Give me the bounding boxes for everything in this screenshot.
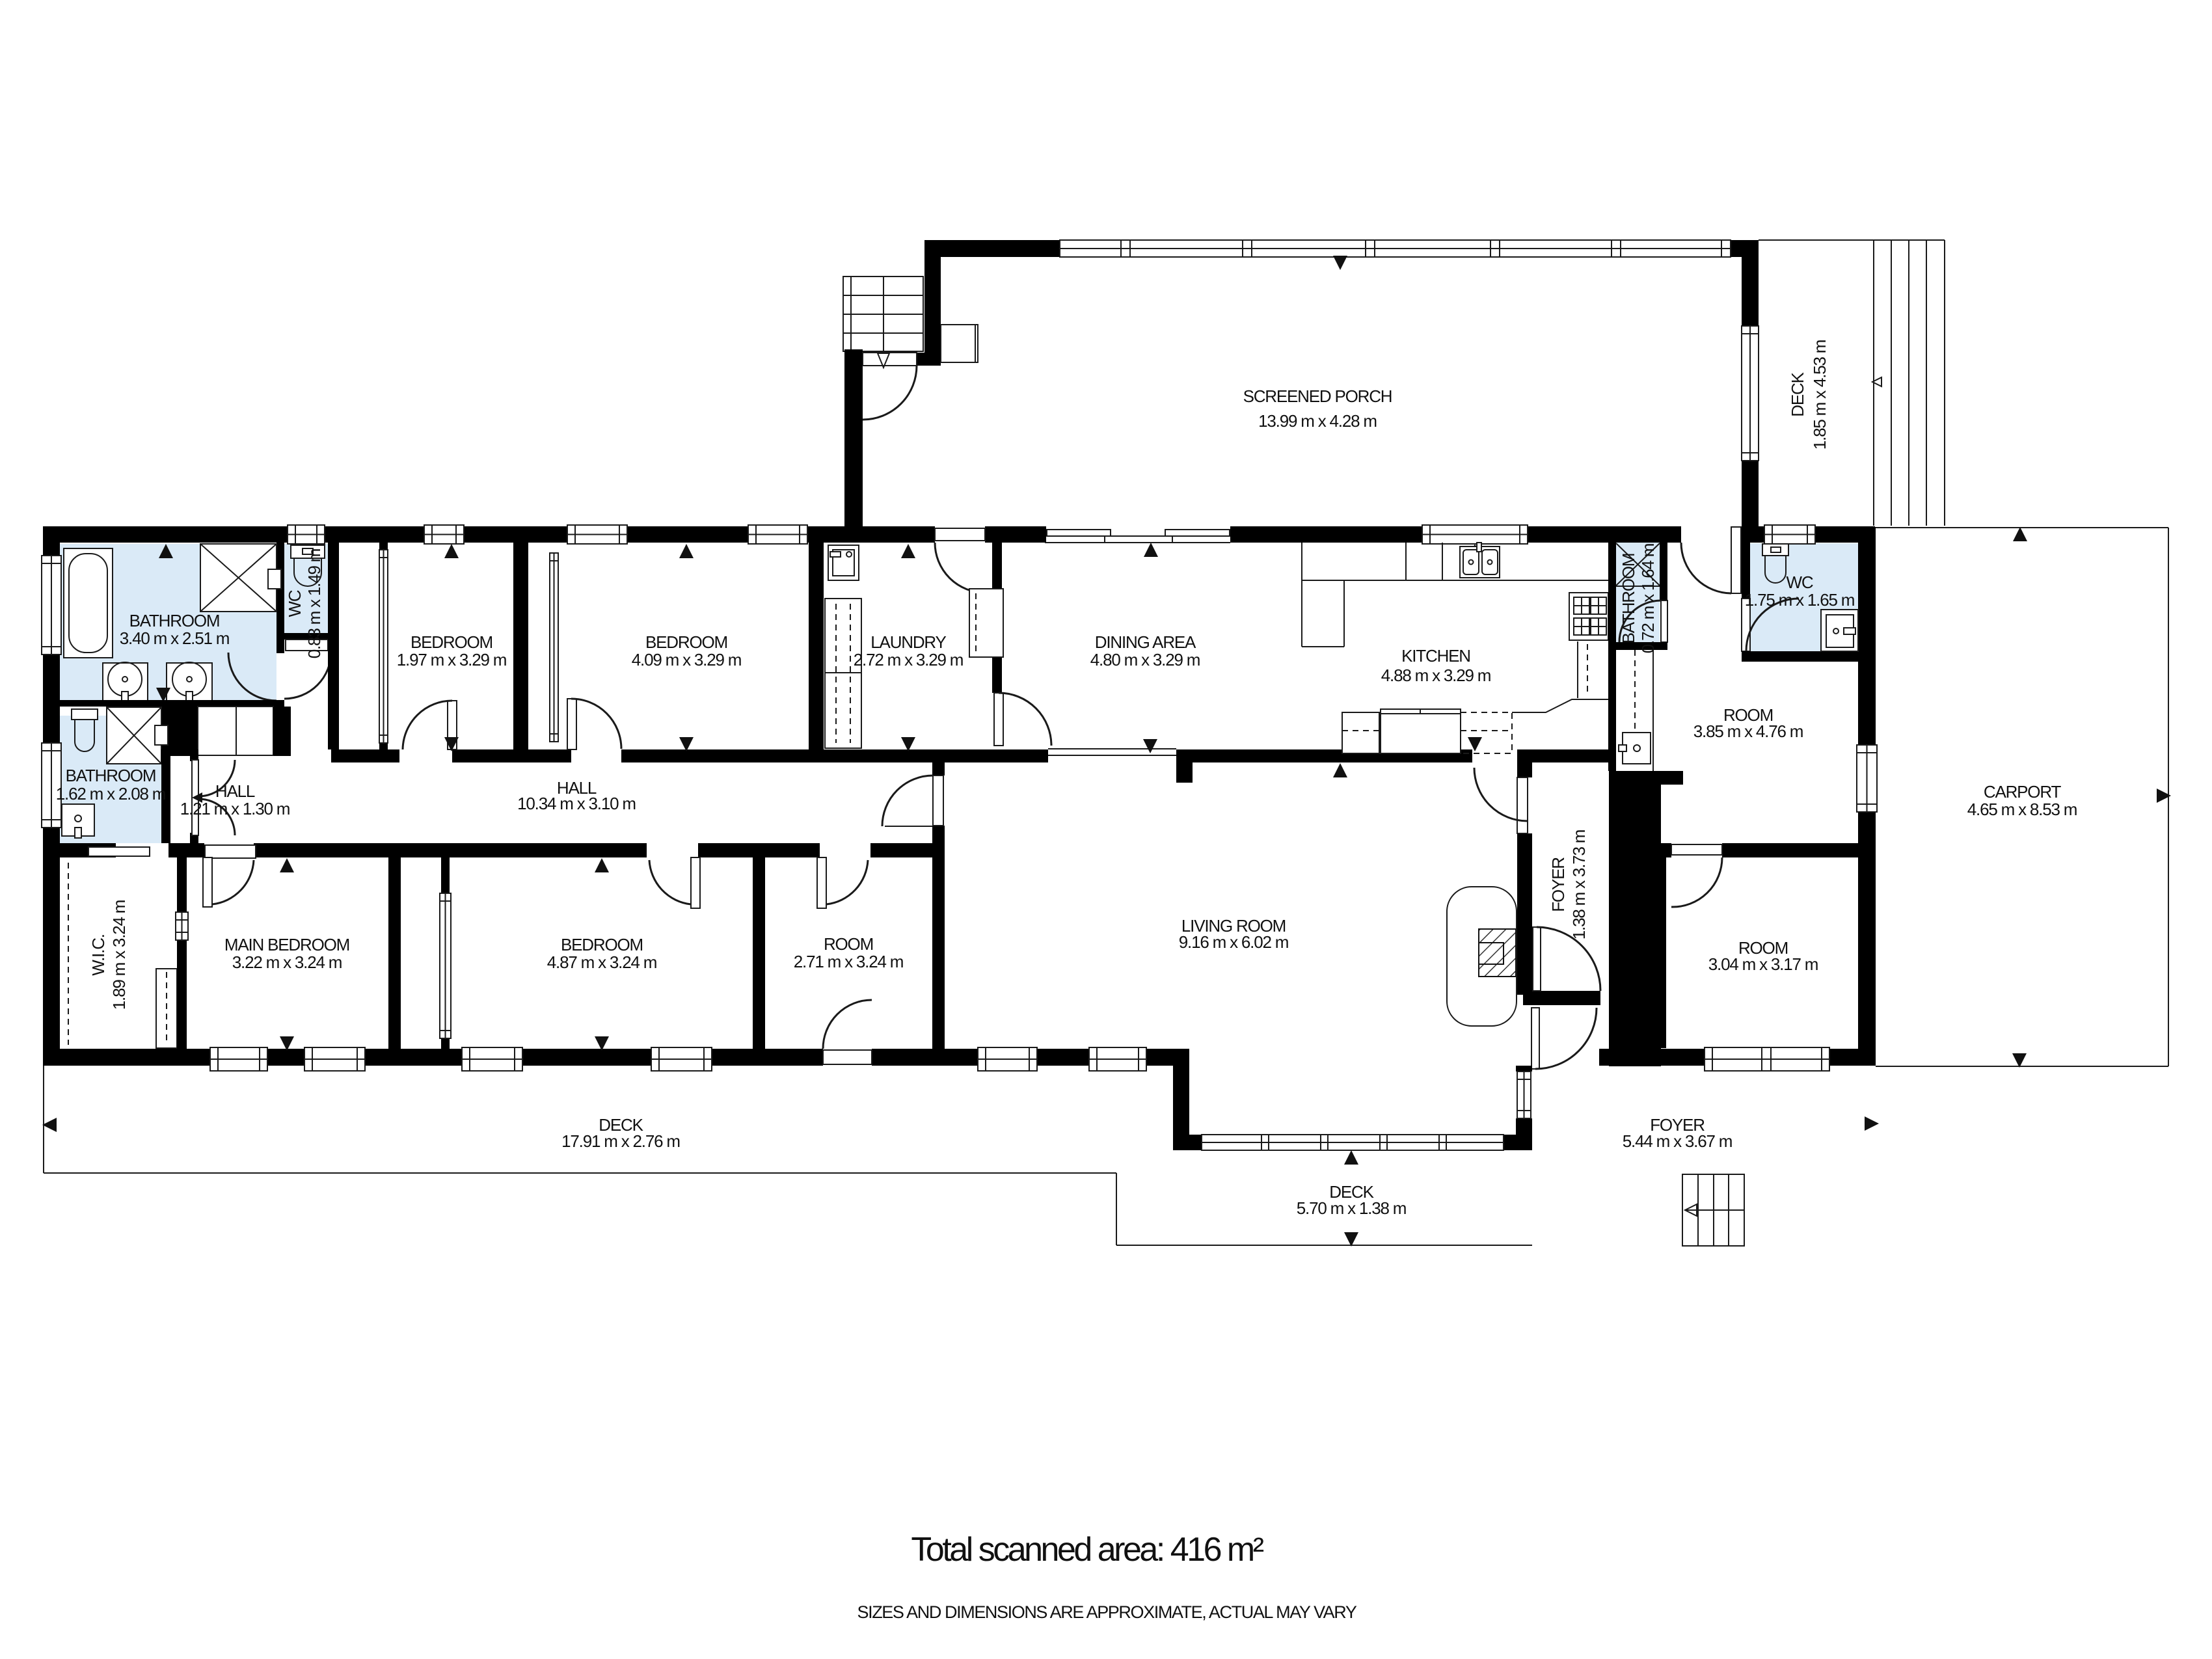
svg-text:5.70 m x 1.38 m: 5.70 m x 1.38 m — [1297, 1198, 1406, 1218]
svg-text:1.38 m x 3.73 m: 1.38 m x 3.73 m — [1569, 830, 1589, 939]
svg-text:1.85 m x 4.53 m: 1.85 m x 4.53 m — [1810, 340, 1829, 450]
svg-text:DINING AREA: DINING AREA — [1095, 632, 1196, 652]
svg-text:2.72 m x 3.29 m: 2.72 m x 3.29 m — [854, 650, 963, 669]
svg-text:SIZES AND DIMENSIONS ARE APPRO: SIZES AND DIMENSIONS ARE APPROXIMATE, AC… — [857, 1602, 1356, 1622]
svg-text:3.04 m x 3.17 m: 3.04 m x 3.17 m — [1708, 954, 1818, 974]
svg-text:WC: WC — [1787, 573, 1813, 592]
svg-text:HALL: HALL — [215, 781, 255, 801]
svg-text:BATHROOM: BATHROOM — [129, 611, 220, 630]
svg-text:13.99 m x 4.28 m: 13.99 m x 4.28 m — [1258, 411, 1377, 431]
svg-text:BEDROOM: BEDROOM — [645, 632, 727, 652]
svg-text:5.44 m x 3.67 m: 5.44 m x 3.67 m — [1623, 1131, 1732, 1151]
svg-text:W.I.C.: W.I.C. — [88, 934, 108, 976]
svg-text:4.80 m x 3.29 m: 4.80 m x 3.29 m — [1090, 650, 1200, 669]
svg-text:ROOM: ROOM — [824, 934, 873, 954]
svg-text:WC: WC — [285, 590, 304, 617]
svg-text:3.85 m x 4.76 m: 3.85 m x 4.76 m — [1693, 722, 1803, 741]
svg-text:MAIN BEDROOM: MAIN BEDROOM — [224, 935, 349, 954]
svg-text:1.89 m x 3.24 m: 1.89 m x 3.24 m — [109, 900, 129, 1010]
svg-text:DECK: DECK — [1788, 371, 1807, 416]
svg-text:4.65 m x 8.53 m: 4.65 m x 8.53 m — [1967, 800, 2077, 819]
svg-text:Total scanned area: 416 m²: Total scanned area: 416 m² — [911, 1531, 1263, 1569]
svg-text:3.22 m x 3.24 m: 3.22 m x 3.24 m — [232, 952, 342, 972]
svg-text:9.16 m x 6.02 m: 9.16 m x 6.02 m — [1179, 932, 1288, 952]
svg-text:BATHROOM: BATHROOM — [1619, 554, 1638, 644]
svg-text:10.34 m x 3.10 m: 10.34 m x 3.10 m — [517, 794, 636, 813]
svg-text:KITCHEN: KITCHEN — [1401, 646, 1470, 666]
svg-text:1.75 m x 1.65 m: 1.75 m x 1.65 m — [1745, 590, 1854, 610]
svg-text:BEDROOM: BEDROOM — [561, 935, 643, 954]
svg-text:0.83 m x 1.49 m: 0.83 m x 1.49 m — [304, 549, 324, 658]
svg-text:BATHROOM: BATHROOM — [66, 766, 156, 785]
svg-text:SCREENED PORCH: SCREENED PORCH — [1243, 386, 1392, 406]
svg-text:4.09 m x 3.29 m: 4.09 m x 3.29 m — [632, 650, 741, 669]
svg-text:17.91 m x 2.76 m: 17.91 m x 2.76 m — [561, 1131, 680, 1151]
svg-text:1.62 m x 2.08 m: 1.62 m x 2.08 m — [56, 784, 165, 803]
svg-text:1.97 m x 3.29 m: 1.97 m x 3.29 m — [397, 650, 506, 669]
svg-text:2.71 m x 3.24 m: 2.71 m x 3.24 m — [794, 952, 903, 971]
svg-text:3.40 m x 2.51 m: 3.40 m x 2.51 m — [120, 628, 229, 648]
svg-text:1.21 m x 1.30 m: 1.21 m x 1.30 m — [180, 799, 290, 818]
svg-text:4.88 m x 3.29 m: 4.88 m x 3.29 m — [1381, 666, 1490, 685]
svg-text:CARPORT: CARPORT — [1984, 782, 2062, 802]
svg-text:4.87 m x 3.24 m: 4.87 m x 3.24 m — [547, 952, 656, 972]
svg-text:0.72 m x 1.64 m: 0.72 m x 1.64 m — [1638, 544, 1658, 653]
svg-text:FOYER: FOYER — [1548, 857, 1568, 912]
svg-text:LAUNDRY: LAUNDRY — [870, 632, 946, 652]
svg-text:BEDROOM: BEDROOM — [411, 632, 492, 652]
